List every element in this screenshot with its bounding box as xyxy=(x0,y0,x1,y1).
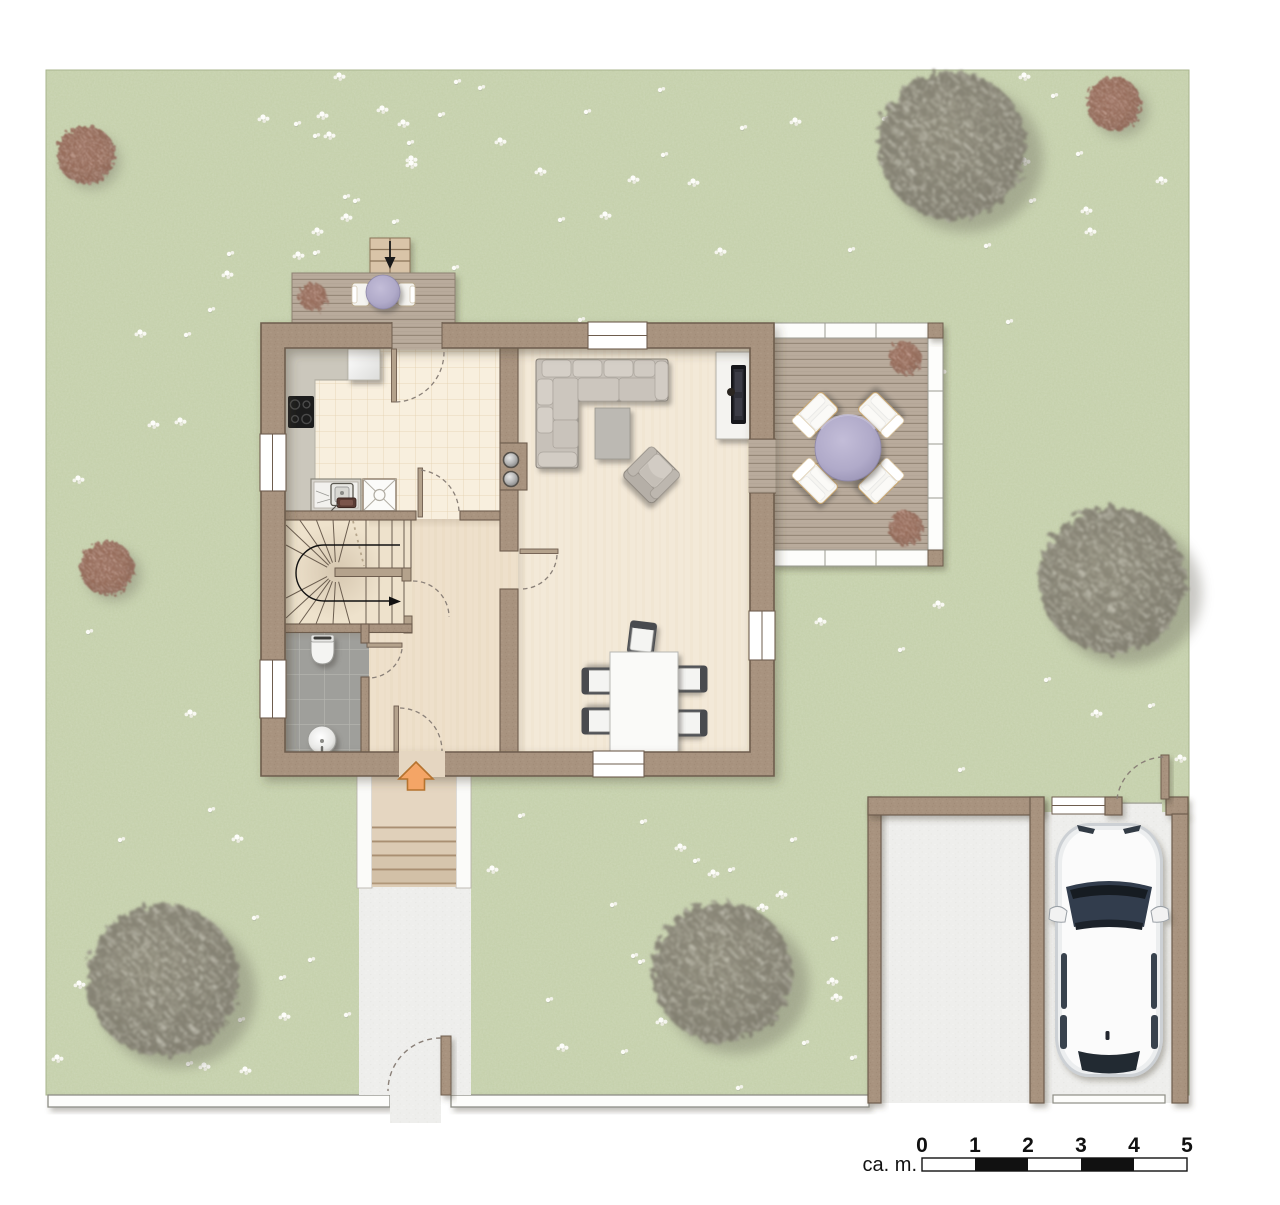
svg-text:0: 0 xyxy=(916,1134,928,1157)
svg-text:5: 5 xyxy=(1181,1134,1193,1157)
svg-text:ca. m.: ca. m. xyxy=(863,1154,917,1176)
svg-text:3: 3 xyxy=(1075,1134,1087,1157)
svg-text:1: 1 xyxy=(969,1134,981,1157)
svg-text:4: 4 xyxy=(1128,1134,1140,1157)
svg-text:2: 2 xyxy=(1022,1134,1034,1157)
